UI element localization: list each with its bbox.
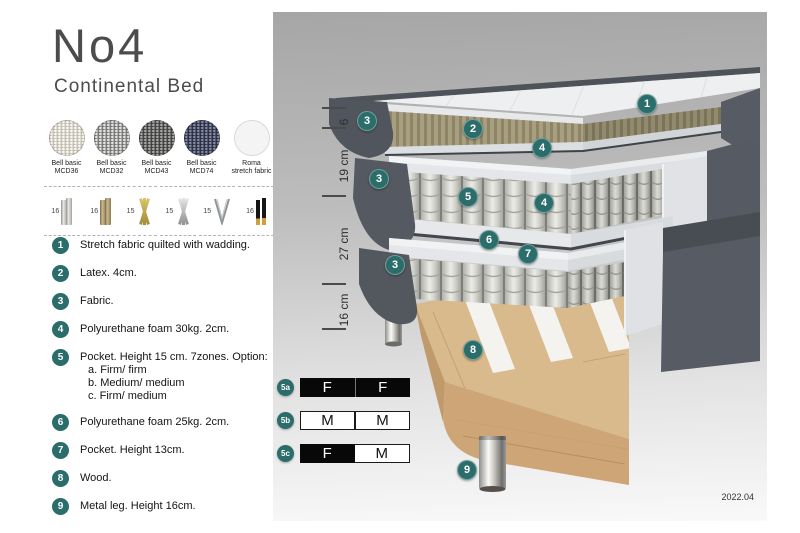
dimension-label: 27 cm xyxy=(337,214,351,274)
leg-option[interactable]: 16 xyxy=(83,186,119,236)
part-description: Pocket. Height 15 cm. 7zones. Option: a.… xyxy=(80,351,268,403)
fabric-swatch[interactable]: Roma stretch fabric xyxy=(231,120,272,176)
part-number-badge: 8 xyxy=(52,470,69,487)
product-title: No4 xyxy=(52,18,147,73)
firmness-badge: 5b xyxy=(277,412,294,429)
fabric-swatch-code: stretch fabric xyxy=(231,168,272,176)
firmness-cell: F xyxy=(300,444,355,463)
callout-4a: 4 xyxy=(532,138,552,158)
parts-list-item: 3 Fabric. xyxy=(52,295,270,310)
info-column: No4 Continental Bed Bell basic MCD36 Bel… xyxy=(0,0,273,533)
parts-list-item: 7 Pocket. Height 13cm. xyxy=(52,444,270,459)
leg-cylinder-bronze-icon xyxy=(100,197,111,225)
part-number-badge: 4 xyxy=(52,321,69,338)
leg-height: 16 xyxy=(246,208,254,215)
parts-list-item: 6 Polyurethane foam 25kg. 2cm. xyxy=(52,416,270,431)
part-number-badge: 5 xyxy=(52,349,69,366)
part-number-badge: 2 xyxy=(52,265,69,282)
firmness-badge: 5c xyxy=(277,445,294,462)
fabric-swatch-name: Bell basic xyxy=(91,160,132,168)
version-label: 2022.04 xyxy=(721,492,754,502)
part-description: Polyurethane foam 25kg. 2cm. xyxy=(80,416,229,429)
callout-7: 7 xyxy=(518,244,538,264)
part-number-badge: 9 xyxy=(52,498,69,515)
parts-list-item: 5 Pocket. Height 15 cm. 7zones. Option: … xyxy=(52,351,270,403)
parts-list-item: 2 Latex. 4cm. xyxy=(52,267,270,282)
part-description: Metal leg. Height 16cm. xyxy=(80,500,196,513)
parts-list-item: 1 Stretch fabric quilted with wadding. xyxy=(52,239,270,254)
firmness-cell: F xyxy=(355,378,411,397)
fabric-swatch-code: MCD32 xyxy=(91,168,132,176)
firmness-badge: 5a xyxy=(277,379,294,396)
parts-list: 1 Stretch fabric quilted with wadding. 2… xyxy=(52,239,270,528)
part-option: b. Medium/ medium xyxy=(88,377,268,390)
fabric-swatch[interactable]: Bell basic MCD74 xyxy=(181,120,222,176)
part-description: Latex. 4cm. xyxy=(80,267,137,280)
fabric-swatch[interactable]: Bell basic MCD43 xyxy=(136,120,177,176)
firmness-row-5c: 5c F M xyxy=(277,444,410,463)
firmness-table: F M xyxy=(300,444,410,463)
part-description: Wood. xyxy=(80,472,112,485)
leg-option[interactable]: 16 xyxy=(44,186,80,236)
fabric-swatch-code: MCD36 xyxy=(46,168,87,176)
part-option: a. Firm/ firm xyxy=(88,364,268,377)
callout-6: 6 xyxy=(479,230,499,250)
leg-hairpin-icon xyxy=(213,197,231,225)
callout-1: 1 xyxy=(637,94,657,114)
product-subtitle: Continental Bed xyxy=(54,76,204,98)
firmness-table: F F xyxy=(300,378,410,397)
callout-2: 2 xyxy=(463,119,483,139)
part-description-main: Pocket. Height 15 cm. 7zones. Option: xyxy=(80,351,268,364)
part-description: Polyurethane foam 30kg. 2cm. xyxy=(80,323,229,336)
callout-3a: 3 xyxy=(357,111,377,131)
leg-options: 16 16 15 15 15 16 xyxy=(44,186,274,236)
fabric-swatches: Bell basic MCD36 Bell basic MCD32 Bell b… xyxy=(46,120,272,176)
parts-list-item: 9 Metal leg. Height 16cm. xyxy=(52,500,270,515)
leg-option[interactable]: 16 xyxy=(238,186,274,236)
fabric-swatch-name: Bell basic xyxy=(181,160,222,168)
leg-height: 16 xyxy=(90,208,98,215)
fabric-swatch-icon[interactable] xyxy=(234,120,270,156)
leg-twisted-silver-icon xyxy=(175,197,191,225)
firmness-table: M M xyxy=(300,411,410,430)
fabric-swatch-icon[interactable] xyxy=(184,120,220,156)
firmness-cell: M xyxy=(355,411,410,430)
part-option: c. Firm/ medium xyxy=(88,390,268,403)
callout-4b: 4 xyxy=(534,193,554,213)
callout-9: 9 xyxy=(457,460,477,480)
callout-3c: 3 xyxy=(385,255,405,275)
fabric-swatch[interactable]: Bell basic MCD32 xyxy=(91,120,132,176)
callout-5: 5 xyxy=(458,187,478,207)
fabric-swatch-name: Roma xyxy=(231,160,272,168)
fabric-swatch-code: MCD43 xyxy=(136,168,177,176)
firmness-cell: M xyxy=(355,444,411,463)
part-description: Pocket. Height 13cm. xyxy=(80,444,185,457)
fabric-swatch-code: MCD74 xyxy=(181,168,222,176)
dimension-label: 19 cm xyxy=(337,136,351,196)
fabric-swatch-name: Bell basic xyxy=(46,160,87,168)
leg-height: 15 xyxy=(166,208,174,215)
fabric-swatch-icon[interactable] xyxy=(49,120,85,156)
firmness-cell: M xyxy=(300,411,355,430)
leg-height: 16 xyxy=(52,208,60,215)
leg-black-gold-icon xyxy=(256,197,266,225)
callout-3b: 3 xyxy=(369,169,389,189)
fabric-swatch[interactable]: Bell basic MCD36 xyxy=(46,120,87,176)
leg-height: 15 xyxy=(203,208,211,215)
leg-option[interactable]: 15 xyxy=(199,186,235,236)
fabric-swatch-name: Bell basic xyxy=(136,160,177,168)
firmness-row-5b: 5b M M xyxy=(277,411,410,430)
parts-list-item: 4 Polyurethane foam 30kg. 2cm. xyxy=(52,323,270,338)
leg-height: 15 xyxy=(127,208,135,215)
firmness-row-5a: 5a F F xyxy=(277,378,410,397)
firmness-cell: F xyxy=(300,378,355,397)
leg-twisted-gold-icon xyxy=(136,197,152,225)
dimension-label: 16 cm xyxy=(337,280,351,340)
part-number-badge: 7 xyxy=(52,442,69,459)
part-number-badge: 1 xyxy=(52,237,69,254)
leg-option[interactable]: 15 xyxy=(160,186,196,236)
leg-option[interactable]: 15 xyxy=(122,186,158,236)
part-number-badge: 6 xyxy=(52,414,69,431)
callout-8: 8 xyxy=(463,340,483,360)
part-description: Fabric. xyxy=(80,295,114,308)
parts-list-item: 8 Wood. xyxy=(52,472,270,487)
part-description: Stretch fabric quilted with wadding. xyxy=(80,239,250,252)
fabric-swatch-icon[interactable] xyxy=(139,120,175,156)
fabric-swatch-icon[interactable] xyxy=(94,120,130,156)
diagram-panel: 6 19 cm 27 cm 16 cm 1 2 3 3 3 4 4 5 6 7 … xyxy=(273,12,767,521)
part-number-badge: 3 xyxy=(52,293,69,310)
leg-cylinder-silver-icon xyxy=(61,197,72,225)
